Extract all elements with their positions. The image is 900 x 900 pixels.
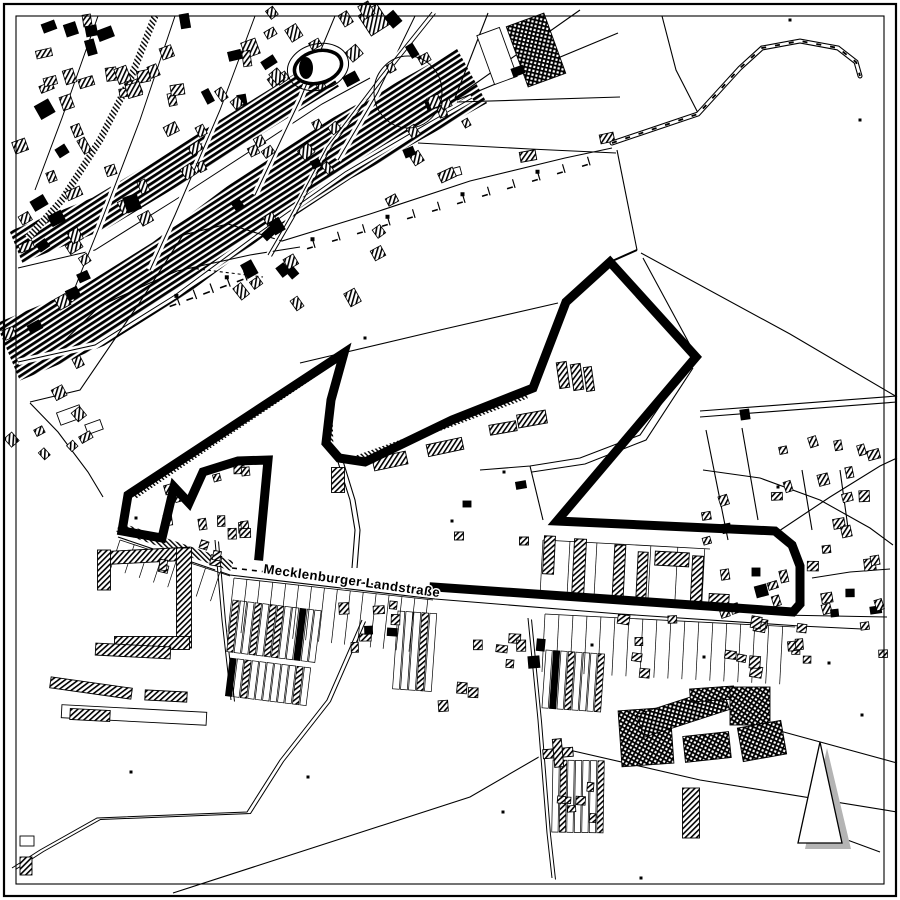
map-canvas: Mecklenburger Landstraße: [0, 0, 900, 900]
map-frame: Mecklenburger Landstraße: [0, 0, 900, 900]
